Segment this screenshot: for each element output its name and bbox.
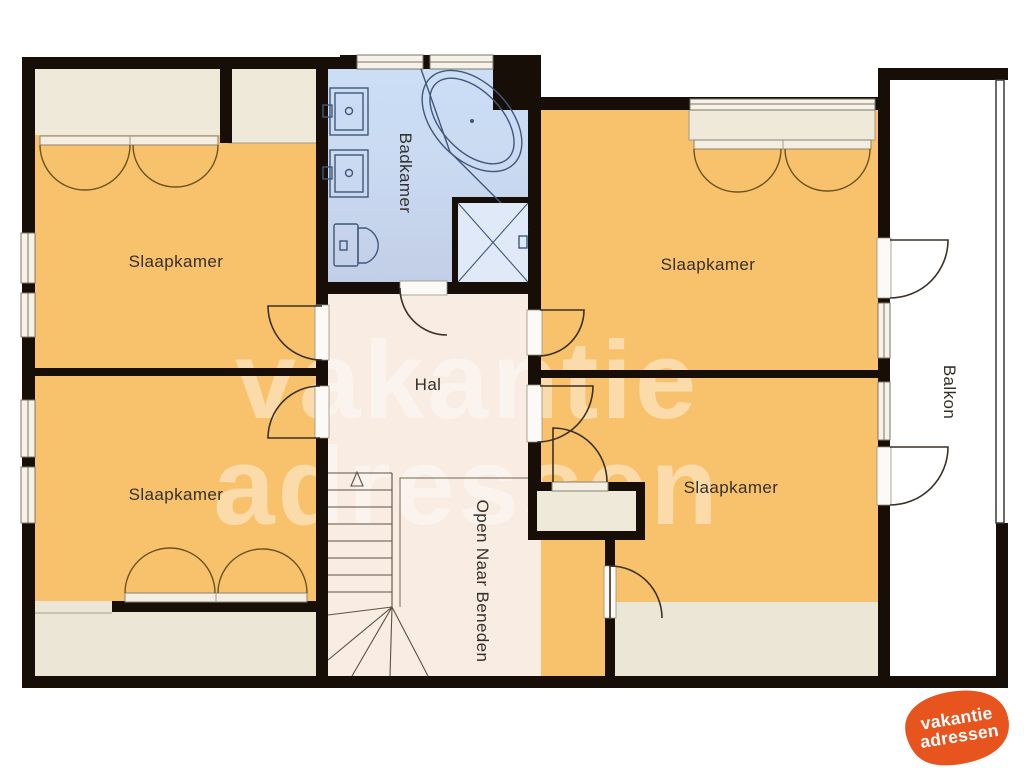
room-label-bathroom: Badkamer xyxy=(396,133,415,214)
door-gap-balcony-br xyxy=(877,447,891,505)
room-label-hall: Hal xyxy=(415,375,442,394)
niche-tl xyxy=(228,68,317,143)
room-label-bedroom-tl: Slaapkamer xyxy=(129,252,224,271)
closet-tr xyxy=(689,110,875,140)
wall-closet-divider-tl xyxy=(220,68,232,143)
wall-hall-left xyxy=(316,57,328,676)
wall-between-right-bedrooms xyxy=(528,370,890,378)
bathtub-drain xyxy=(470,119,474,123)
understairs-strip-br xyxy=(615,602,878,676)
understairs-strip-bl xyxy=(35,601,316,676)
wall-closet-bl xyxy=(112,601,316,612)
shower-icon xyxy=(458,203,528,282)
room-label-balcony: Balkon xyxy=(940,365,959,419)
door-gap-bedroom-tl xyxy=(315,305,329,360)
wardrobe-strip-tl xyxy=(40,136,218,145)
wall-balcony-top xyxy=(878,68,1008,80)
room-label-bedroom-br: Slaapkamer xyxy=(684,478,779,497)
room-label-stair-void: Open Naar Beneden xyxy=(473,500,492,663)
door-gap-bedroom-br xyxy=(527,385,542,442)
closet-a-interior xyxy=(537,491,636,531)
watermark-line1: vakantie xyxy=(235,319,699,442)
door-gap-bedroom-bl xyxy=(315,386,329,438)
room-label-bedroom-tr: Slaapkamer xyxy=(661,255,756,274)
room-label-bedroom-bl: Slaapkamer xyxy=(129,485,224,504)
closet-tl xyxy=(35,68,220,135)
door-gap-bedroom-tr xyxy=(527,310,542,355)
wall-shower-left xyxy=(452,197,458,282)
balcony-railing xyxy=(996,80,1004,523)
wall-top-left-section xyxy=(22,57,357,69)
floorplan-drawing: vakantie adressen xyxy=(0,0,1024,768)
vendor-logo: vakantie adressen xyxy=(900,683,1014,768)
door-gap-balcony-tr xyxy=(877,238,891,298)
floorplan-page: vakantie adressen xyxy=(0,0,1024,768)
wall-balcony-right xyxy=(996,523,1008,688)
wall-shower-top xyxy=(452,197,528,203)
door-gap-bathroom xyxy=(400,281,447,295)
wall-bottom xyxy=(22,676,1008,688)
wall-left xyxy=(22,57,35,688)
closet-a-door-gap xyxy=(552,482,608,491)
wall-between-left-bedrooms xyxy=(35,368,328,376)
